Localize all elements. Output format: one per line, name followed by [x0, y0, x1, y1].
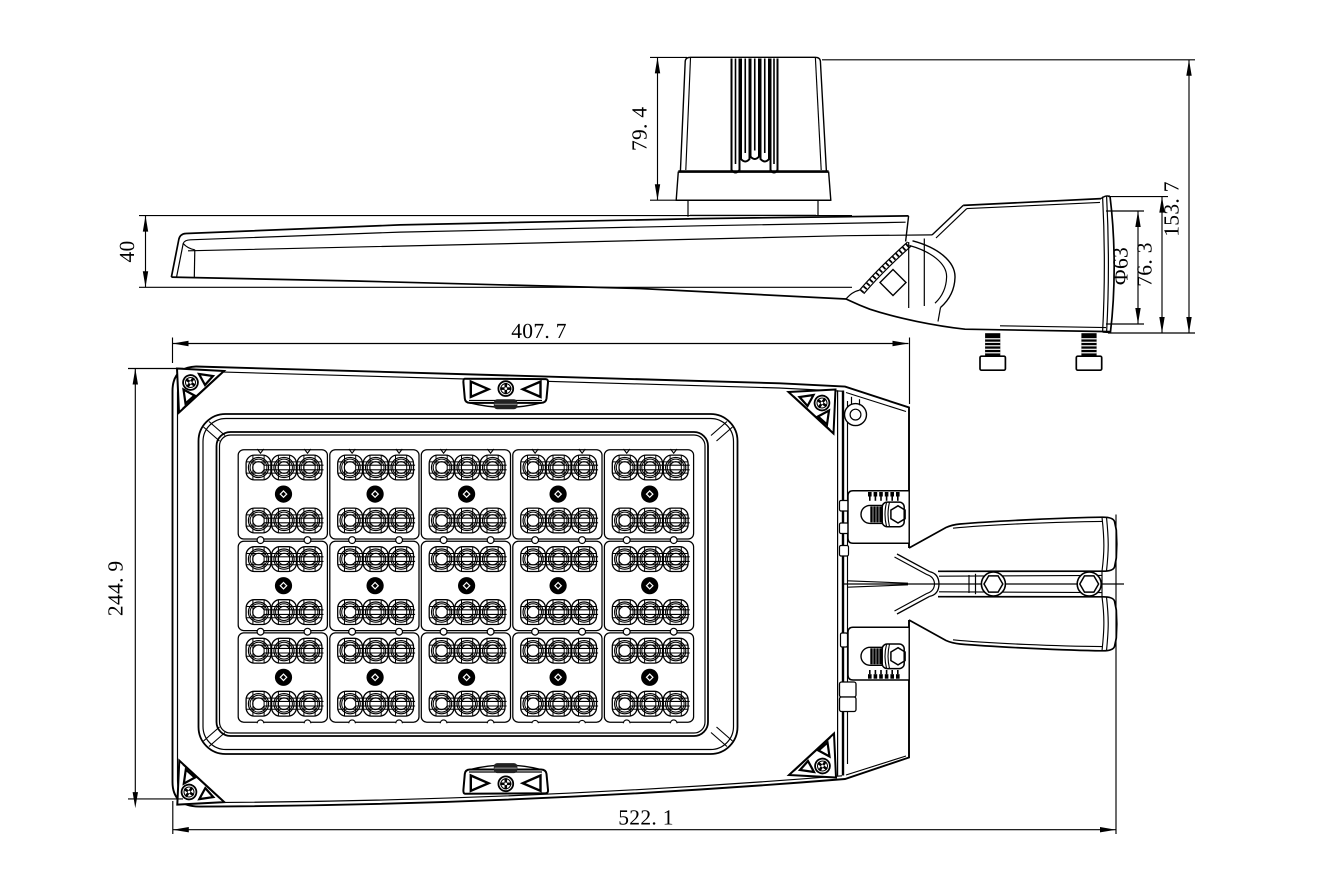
svg-text:407. 7: 407. 7: [511, 319, 567, 343]
svg-text:40: 40: [115, 240, 139, 262]
svg-text:Φ63: Φ63: [1109, 247, 1133, 285]
svg-text:244. 9: 244. 9: [104, 561, 128, 617]
svg-text:76. 3: 76. 3: [1133, 242, 1157, 287]
svg-text:79. 4: 79. 4: [628, 107, 652, 152]
svg-text:153. 7: 153. 7: [1160, 181, 1184, 237]
svg-text:522. 1: 522. 1: [618, 806, 674, 830]
